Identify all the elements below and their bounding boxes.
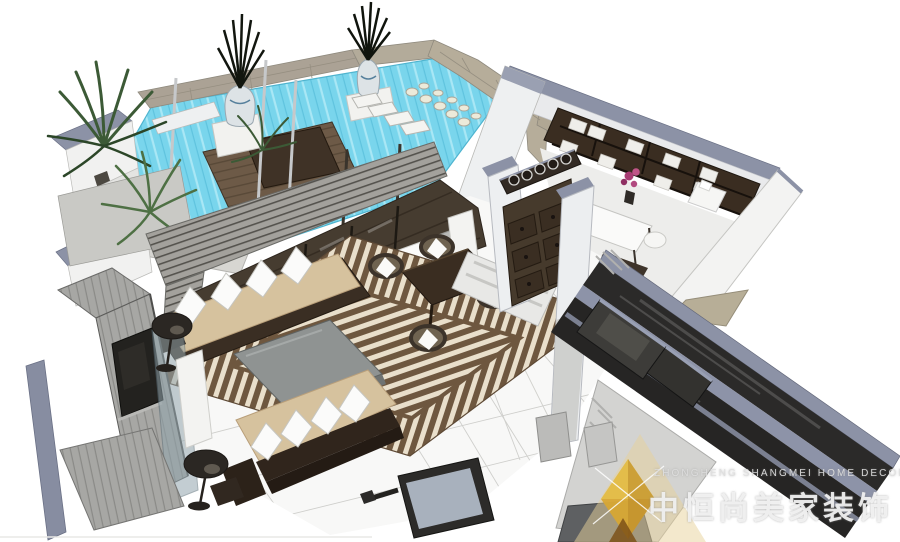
dining-chair [370,255,402,278]
study-chair [644,232,666,248]
interior-rendering [0,0,900,542]
porcelain-vase [357,59,379,97]
interior-rendering-canvas: ZHONGHENG SHANGMEI HOME DECORATION 中恒尚美家… [0,0,900,542]
gray-box-column [584,422,617,467]
dining-chair [411,326,445,350]
gray-box-column [536,412,571,462]
porcelain-vase [225,85,255,127]
